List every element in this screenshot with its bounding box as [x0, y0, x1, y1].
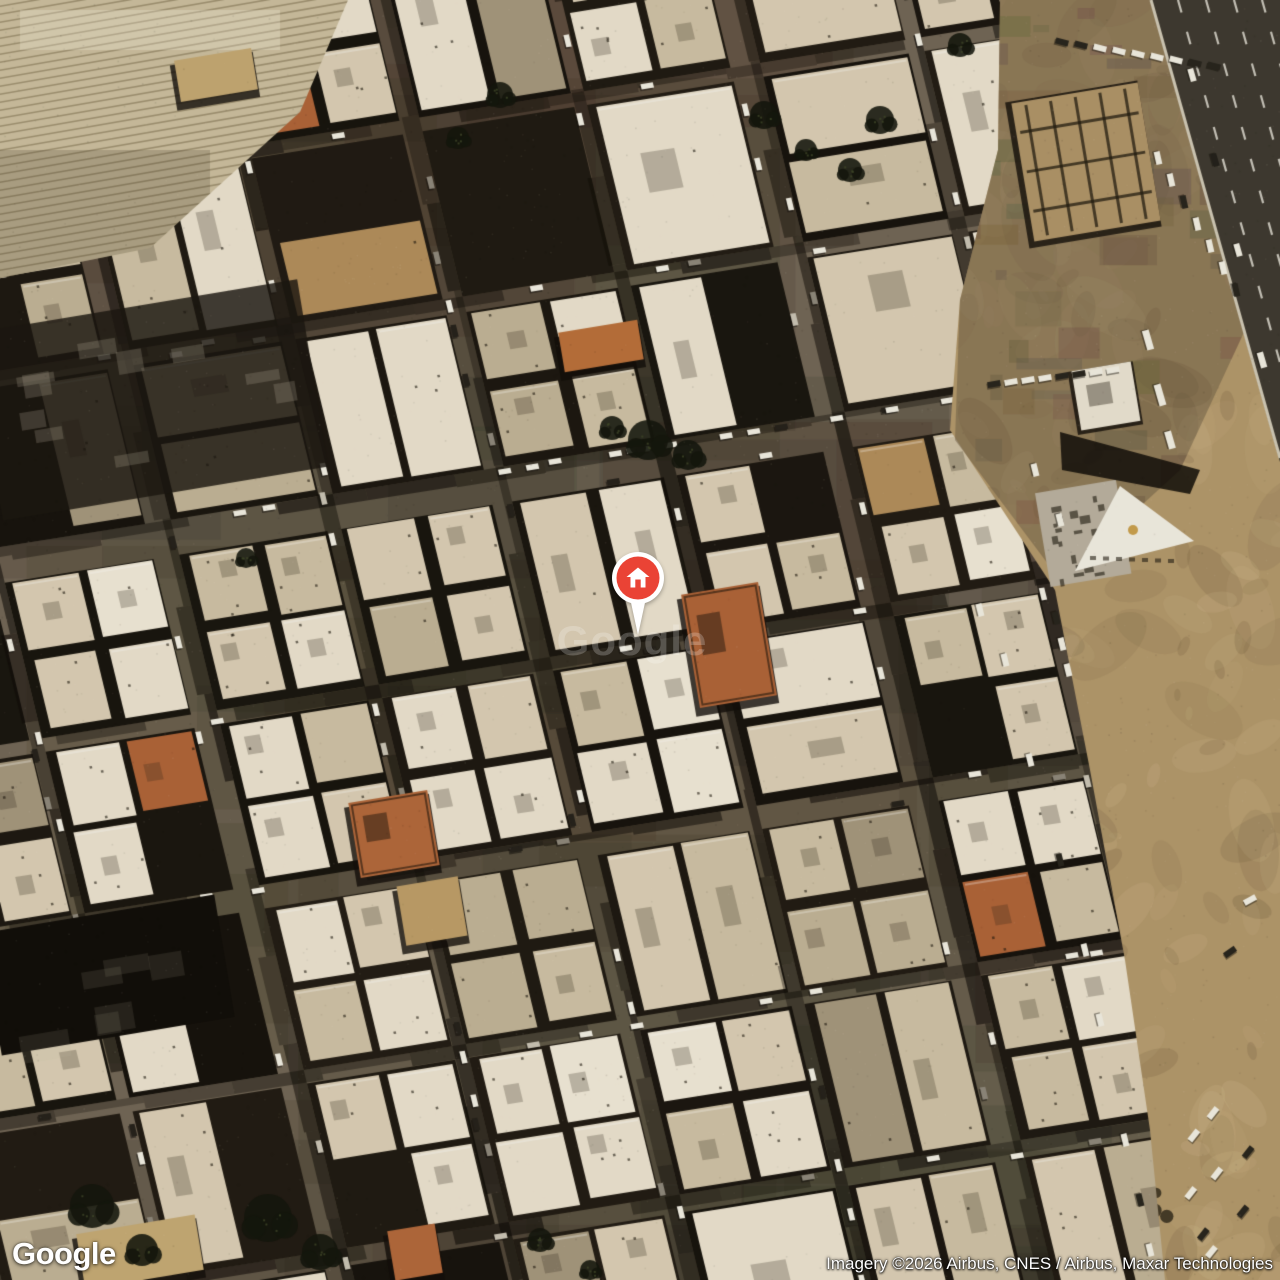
- google-logo[interactable]: Google: [12, 1236, 116, 1272]
- map-viewport[interactable]: Google Google Imagery ©2026 Airbus, CNES…: [0, 0, 1280, 1280]
- satellite-imagery[interactable]: [0, 0, 1280, 1280]
- home-location-pin[interactable]: [604, 548, 672, 640]
- imagery-attribution: Imagery ©2026 Airbus, CNES / Airbus, Max…: [826, 1254, 1273, 1274]
